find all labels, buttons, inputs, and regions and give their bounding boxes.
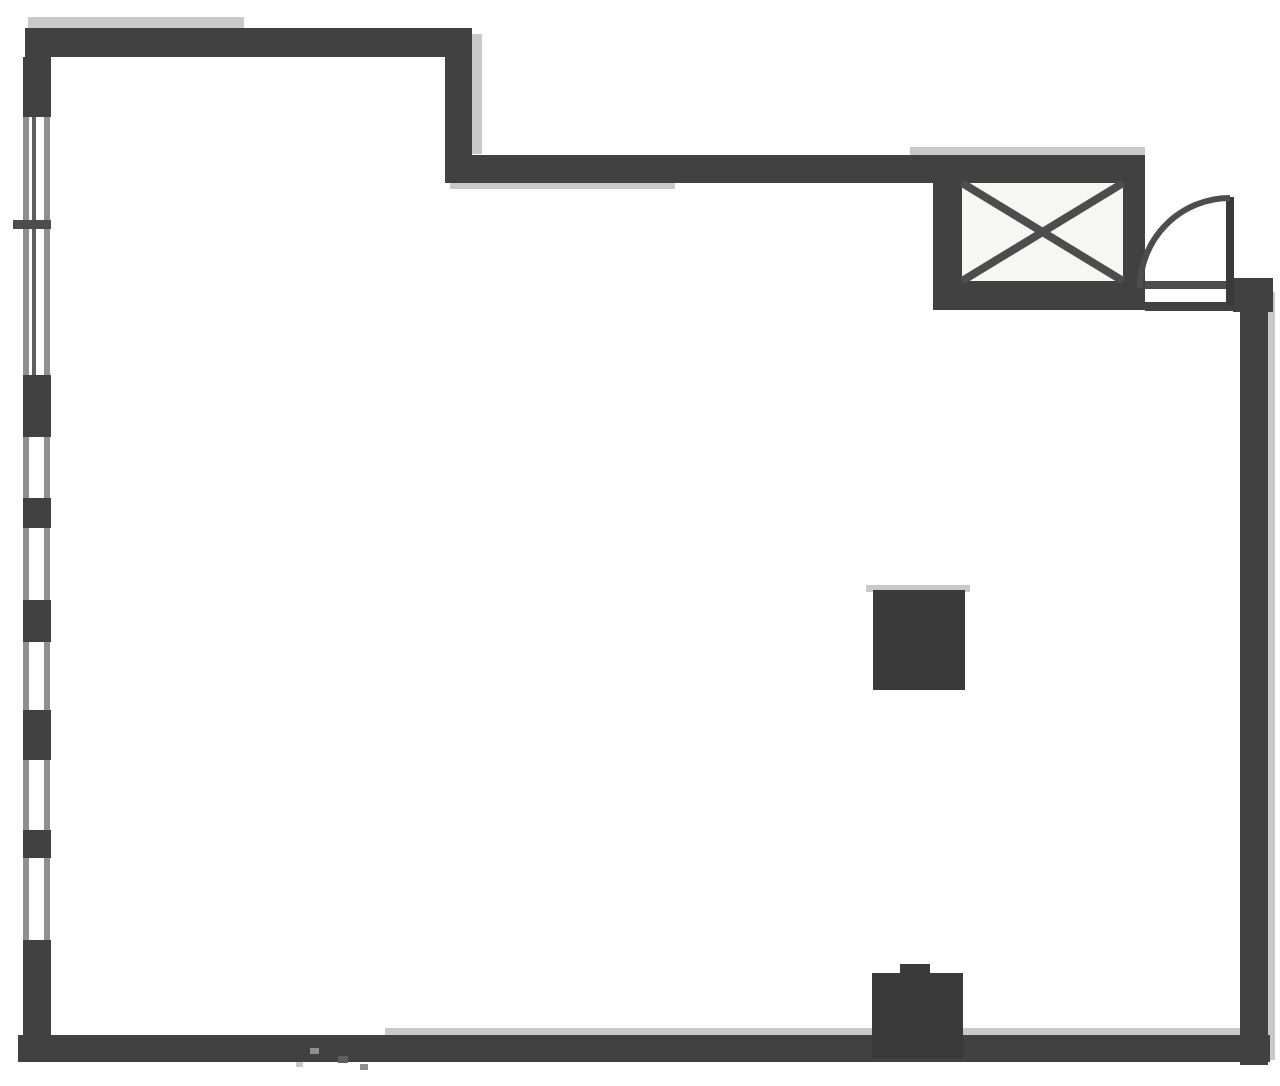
left-wall-pier-1	[23, 57, 51, 117]
door-threshold-top-line	[1145, 281, 1235, 289]
left-wall-pier-7	[23, 940, 51, 1035]
setback-wall-side-shadow	[472, 34, 482, 154]
left-wall-pier-4	[23, 600, 51, 642]
elevator-shaft-interior	[962, 183, 1123, 281]
bottom-column	[872, 973, 963, 1058]
right-wall	[1240, 280, 1268, 1065]
elevator-top-shadow	[910, 147, 1145, 155]
left-wall-inner-rail	[44, 57, 50, 1035]
window-mullion-tick	[13, 220, 51, 229]
top-wall-upper	[25, 28, 472, 57]
door-swing-arc	[1140, 198, 1230, 288]
center-column	[873, 590, 965, 690]
bottom-wall-top-shadow	[385, 1028, 1243, 1035]
door-threshold-bottom-line	[1145, 302, 1235, 311]
left-wall-pier-5	[23, 710, 51, 760]
scan-speckle-2	[338, 1056, 348, 1063]
scan-speckle-1	[310, 1048, 319, 1054]
bottom-wall	[18, 1035, 1270, 1062]
upper-wall-underside-shadow	[450, 183, 675, 189]
left-wall-outer-rail	[23, 57, 29, 1035]
right-wall-outer-shadow	[1268, 292, 1275, 1060]
left-wall-pier-2	[23, 375, 51, 437]
scan-speckle-4	[296, 1062, 303, 1067]
entry-door-leaf	[1226, 197, 1234, 305]
left-wall-pier-3	[23, 498, 51, 528]
left-wall-glazing-line	[32, 117, 36, 375]
left-wall-pier-6	[23, 830, 51, 858]
floor-plan-canvas	[0, 0, 1280, 1086]
scan-speckle-3	[360, 1064, 368, 1070]
